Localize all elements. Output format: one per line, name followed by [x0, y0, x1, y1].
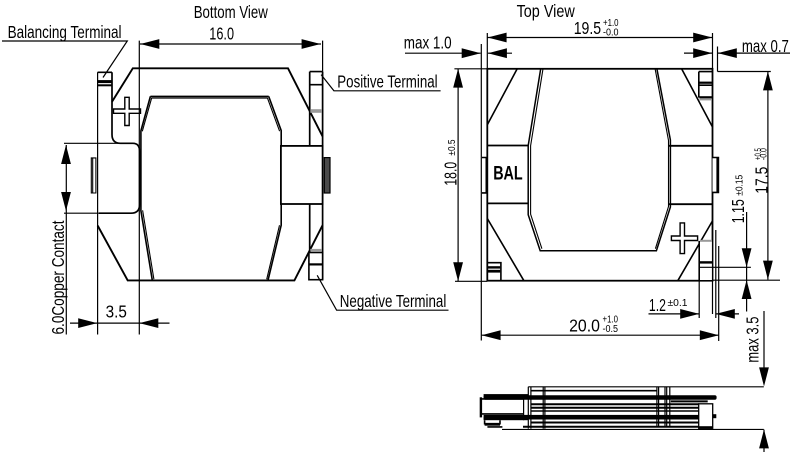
- svg-text:3.5: 3.5: [106, 302, 127, 322]
- svg-text:±0.15: ±0.15: [734, 175, 745, 196]
- svg-text:19.5: 19.5: [574, 18, 601, 38]
- svg-text:Negative Terminal: Negative Terminal: [340, 291, 447, 311]
- svg-text:max 0.7: max 0.7: [742, 36, 789, 56]
- svg-text:Balancing Terminal: Balancing Terminal: [8, 22, 122, 42]
- svg-text:max 1.0: max 1.0: [404, 33, 452, 53]
- svg-text:Top View: Top View: [517, 1, 575, 21]
- svg-text:-0.0: -0.0: [603, 27, 619, 38]
- svg-text:BAL: BAL: [493, 164, 523, 185]
- svg-text:18.0: 18.0: [441, 162, 461, 186]
- svg-text:20.0: 20.0: [569, 315, 600, 335]
- svg-text:max 3.5: max 3.5: [743, 317, 763, 363]
- svg-text:1.2: 1.2: [649, 295, 666, 315]
- svg-text:-0.0: -0.0: [759, 148, 770, 160]
- svg-text:17.5: 17.5: [751, 167, 771, 194]
- svg-text:Bottom View: Bottom View: [194, 2, 268, 22]
- svg-text:Positive Terminal: Positive Terminal: [337, 72, 437, 92]
- svg-text:6.0Copper Contact: 6.0Copper Contact: [48, 220, 68, 334]
- svg-text:±0.1: ±0.1: [668, 298, 688, 309]
- svg-text:16.0: 16.0: [209, 23, 234, 43]
- svg-text:±0.5: ±0.5: [447, 139, 458, 155]
- svg-text:-0.5: -0.5: [603, 324, 619, 335]
- svg-text:1.15: 1.15: [728, 199, 748, 223]
